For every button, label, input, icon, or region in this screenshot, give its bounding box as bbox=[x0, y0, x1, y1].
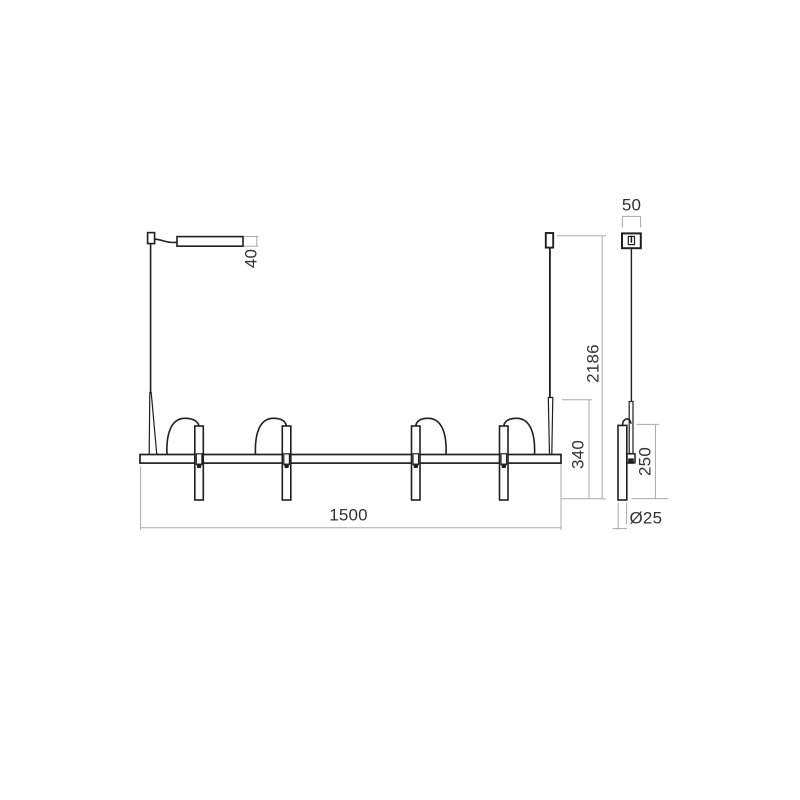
dimension-tube-length: 250 bbox=[632, 424, 669, 498]
dimension-fixture-drop: 340 bbox=[562, 400, 592, 499]
bar-end-connector bbox=[628, 458, 634, 463]
ceiling-grip-left bbox=[148, 233, 155, 244]
pendant-tube-2 bbox=[282, 426, 291, 500]
dimension-tube-diameter: Ø25 bbox=[613, 503, 663, 530]
dimension-label-1500: 1500 bbox=[329, 506, 368, 525]
dimension-drawing-canvas: 40 1500 340 2186 50 bbox=[0, 0, 800, 800]
suspension-stem-right bbox=[548, 398, 553, 455]
tube-collar-4 bbox=[501, 454, 507, 465]
suspension-stem-side bbox=[629, 402, 633, 454]
dimension-label-40: 40 bbox=[241, 249, 260, 268]
driver-box bbox=[177, 237, 243, 247]
front-view: 40 1500 340 2186 bbox=[140, 233, 606, 530]
tube-collar-3 bbox=[413, 454, 419, 465]
pendant-tube-1 bbox=[195, 426, 204, 500]
dimension-driver-height: 40 bbox=[241, 237, 260, 269]
tube-collar-2 bbox=[284, 454, 290, 465]
dimension-label-2186: 2186 bbox=[583, 344, 602, 383]
tube-collar-1 bbox=[196, 454, 202, 465]
power-feed-cable bbox=[155, 239, 177, 242]
suspension-stem-left bbox=[149, 393, 157, 455]
pendant-tube-3 bbox=[412, 426, 421, 500]
dimension-label-50: 50 bbox=[622, 196, 641, 215]
tube-body-side bbox=[618, 425, 627, 500]
dimension-label-250: 250 bbox=[636, 447, 655, 476]
pendant-light-drawing: 40 1500 340 2186 50 bbox=[0, 0, 800, 800]
side-view: 50 250 Ø25 bbox=[613, 196, 669, 530]
pendant-tube-4 bbox=[500, 426, 509, 500]
dimension-label-340: 340 bbox=[568, 440, 587, 469]
dimension-canopy-width: 50 bbox=[622, 196, 641, 228]
dimension-label-diameter-25: Ø25 bbox=[630, 509, 663, 528]
ceiling-grip-right bbox=[546, 233, 553, 248]
